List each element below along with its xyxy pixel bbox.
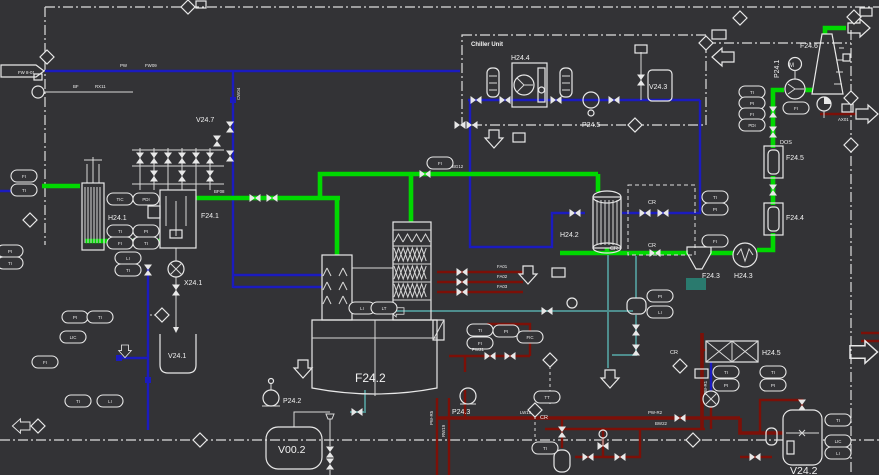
instrument-tag: PI [713, 207, 717, 212]
instruments-layer: FITIPITITICPDITIPIFITILITIPITILICFITILIF… [0, 86, 851, 459]
instrument-tag: LI [360, 306, 364, 311]
pipe-label: FA01 [497, 264, 508, 269]
instrument-tag: PI [504, 329, 508, 334]
instrument-tag: FIC [526, 335, 533, 340]
equipment-label: P24.1 [774, 60, 781, 78]
boundary-diamond-icon [543, 353, 557, 367]
instrument-bubble: FI [11, 170, 37, 182]
instrument-tag: PDI [142, 197, 149, 202]
boundary-diamond-icon [673, 359, 687, 373]
instrument-bubble: LT [371, 302, 397, 314]
instrument-tag: FI [438, 161, 442, 166]
equipment-label: F24.3 [702, 273, 720, 280]
instrument-tag: PI [750, 101, 754, 106]
instrument-tag: PI [724, 383, 728, 388]
valve-icon [769, 107, 777, 118]
valve-icon [326, 459, 334, 470]
instrument-tag: PI [8, 249, 12, 254]
arrow-down-icon [601, 370, 619, 388]
instrument-tag: TIC [116, 197, 123, 202]
valve-icon [178, 153, 186, 164]
valve-icon [213, 136, 221, 147]
boundary-diamond-icon [844, 138, 858, 152]
instrument-tag: FI [750, 112, 754, 117]
instrument-bubble: PDI [133, 193, 159, 205]
arrow-right-icon [856, 105, 878, 123]
instrument-tag: FI [713, 239, 717, 244]
equipment-label: P24.3 [452, 409, 470, 416]
instrument-bubble: TT [534, 391, 560, 403]
instrument-bubble: PI [713, 379, 739, 391]
filter-f24-5: F24.5 [764, 146, 804, 178]
valve-icon [558, 427, 566, 438]
equipment-label: V24.1 [168, 353, 186, 360]
boundary-diamond-icon [844, 91, 858, 105]
equipment-label: H24.3 [734, 273, 753, 280]
valve-icon [206, 153, 214, 164]
valve-icon [136, 153, 144, 164]
valve-icon [457, 288, 468, 296]
instrument-bubble: TIC [107, 193, 133, 205]
valve-icon [267, 194, 278, 202]
instrument-bubble: FI [702, 235, 728, 247]
instrument-bubble: FI [107, 237, 133, 249]
instrument-tag: PI [144, 229, 148, 234]
instrument-tag: LT [382, 306, 387, 311]
instrument-bubble: TI [0, 257, 23, 269]
instrument-bubble: FIC [517, 331, 543, 343]
instrument-tag: LIC [70, 335, 77, 340]
pipe-label: PW-R2 [648, 410, 663, 415]
equipment-label: V24.2 [790, 465, 818, 475]
instrument-tag: LI [126, 256, 130, 261]
instrument-tag: PI [658, 294, 662, 299]
instrument-bubble: TI [739, 86, 765, 98]
instrument-tag: TI [478, 328, 482, 333]
instrument-tag: TT [544, 395, 550, 400]
equipment-label: V24.3 [649, 84, 667, 91]
instrument-bubble: FI [427, 157, 453, 169]
fan-p24-1: M P24.1 [774, 58, 805, 100]
valve-icon [150, 171, 158, 182]
instrument-bubble: PI [133, 225, 159, 237]
arrow-left-icon [712, 48, 734, 66]
valve-icon [467, 121, 478, 129]
instrument-bubble: TI [107, 225, 133, 237]
valve-icon [455, 121, 466, 129]
pipe-label: RX11 [95, 84, 106, 89]
valve-icon [471, 96, 482, 104]
valve-icon [675, 414, 686, 422]
instrument-tag: LI [108, 399, 112, 404]
instrument-tag: LI [658, 310, 662, 315]
instrument-bubble: FI [783, 102, 809, 114]
cr-tag: CR [540, 415, 548, 421]
exchanger-h24-3: H24.3 [733, 243, 757, 280]
valve-icon [609, 96, 620, 104]
instrument-bubble: TI [532, 442, 558, 454]
boundary-diamond-icon [699, 36, 713, 50]
instrument-bubble: LI [97, 395, 123, 407]
boundary-diamond-icon [847, 10, 861, 24]
arrow-down-icon [485, 130, 503, 148]
equipment-label: X24.1 [184, 280, 202, 287]
dos-tag: DOS [780, 140, 792, 146]
valve-icon [650, 249, 661, 257]
instrument-bubble: PDI [739, 119, 765, 131]
instrument-tag: LI [836, 451, 840, 456]
filter-f24-4: F24.4 [764, 203, 804, 235]
instrument-bubble: LI [825, 447, 851, 459]
boundary-diamond-icon [23, 213, 37, 227]
equipment-label: H24.2 [560, 232, 579, 239]
instrument-tag: FI [794, 106, 798, 111]
equipment-label: V24.7 [196, 117, 214, 124]
pipe-label: FW 8-01 [18, 70, 35, 75]
valve-icon [457, 278, 468, 286]
valve-icon [542, 307, 553, 315]
pipe-label: BF [73, 84, 79, 89]
valve-icon [250, 194, 261, 202]
valve-icon [570, 209, 581, 217]
instrument-tag: TI [543, 446, 547, 451]
instrument-bubble: FI [739, 108, 765, 120]
valve-icon [420, 170, 431, 178]
equipment-label: V00.2 [278, 444, 306, 456]
instrument-tag: TI [76, 399, 80, 404]
valve-icon [769, 127, 777, 138]
vessel-v24-3: V24.3 [648, 70, 672, 101]
valve-icon [192, 153, 200, 164]
instrument-bubble: PI [739, 97, 765, 109]
equipment-label: H24.1 [108, 215, 127, 222]
instrument-tag: TI [8, 261, 12, 266]
arrow-down-icon [294, 360, 312, 378]
instrument-bubble: PI [647, 290, 673, 302]
arrow-right-icon [850, 341, 878, 364]
equipment-label: P24.5 [582, 122, 600, 129]
instrument-bubble: LIC [825, 435, 851, 447]
instrument-bubble: PI [493, 325, 519, 337]
instrument-tag: FI [118, 241, 122, 246]
valve-icon [352, 408, 363, 416]
valve-icon [457, 268, 468, 276]
instrument-tag: TI [750, 90, 754, 95]
instrument-bubble: TI [133, 237, 159, 249]
valve-icon [750, 453, 761, 461]
instrument-tag: TI [118, 229, 122, 234]
boundary-diamond-icon [193, 433, 207, 447]
instrument-bubble: LI [647, 306, 673, 318]
valve-icon [164, 153, 172, 164]
cr-tag: CR [610, 246, 618, 252]
valve-icon [144, 265, 152, 276]
valve-icon [798, 400, 806, 411]
instrument-bubble: TI [87, 311, 113, 323]
valve-icon [500, 96, 511, 104]
cr-tag: CR [648, 243, 656, 249]
valve-icon [178, 171, 186, 182]
valve-icon [551, 96, 562, 104]
valve-icon [505, 352, 516, 360]
valve-icon [632, 325, 640, 336]
pipe-label: PW [120, 63, 128, 68]
instrument-tag: FI [22, 174, 26, 179]
exchanger-h24-2: H24.2 CR CR [560, 185, 695, 255]
instrument-tag: PI [771, 383, 775, 388]
motor-label: M [789, 63, 794, 69]
pid-diagram-canvas[interactable]: Chiller Unit [0, 0, 879, 475]
instrument-tag: PDI [748, 123, 755, 128]
pump-p24-2: P24.2 [263, 390, 301, 406]
instrument-tag: LIC [835, 439, 842, 444]
instrument-tag: FI [478, 341, 482, 346]
instrument-tag: PI [73, 315, 77, 320]
pump-p24-5: P24.5 [582, 92, 600, 129]
equipment-label: F24.4 [786, 215, 804, 222]
mixer-x24-1: X24.1 [168, 261, 202, 287]
boundary-diamond-icon [181, 0, 195, 14]
valve-icon [615, 453, 626, 461]
instrument-tag: TI [144, 241, 148, 246]
instrument-bubble: TI [760, 366, 786, 378]
pipe-label: CW04 [236, 87, 241, 100]
equipment-label: P24.2 [283, 398, 301, 405]
equipment-label: H24.4 [511, 55, 530, 62]
pipe-label: LW15 [520, 410, 532, 415]
valve-icon [172, 285, 180, 296]
vessel-v24-2: V24.2 [766, 410, 822, 475]
boundary-diamond-icon [40, 50, 54, 64]
instrument-tag: FI [43, 360, 47, 365]
instrument-tag: TI [724, 370, 728, 375]
pipe-label: PW-R1 [703, 380, 708, 395]
valve-icon [769, 185, 777, 196]
process-flow-drawing: Chiller Unit [0, 0, 879, 475]
instrument-bubble: TI [11, 184, 37, 196]
pipe-label: BW22 [655, 421, 668, 426]
cr-tag: CR [670, 350, 678, 356]
valve-icon [485, 352, 496, 360]
boundary-diamond-icon [155, 308, 169, 322]
equipment-label: F24.6 [800, 43, 818, 50]
vessel-v24-1: V24.1 [160, 334, 196, 373]
chiller-unit-label: Chiller Unit [471, 42, 503, 48]
equipment-label: F24.5 [786, 155, 804, 162]
valve-icon [583, 453, 594, 461]
pipe-label: RW19 [441, 424, 446, 437]
boundary-diamond-icon [31, 419, 45, 433]
tank-v00-2: V00.2 [266, 427, 322, 469]
instrument-bubble: TI [65, 395, 91, 407]
instrument-bubble: TI [115, 264, 141, 276]
pipe-label: FA02 [497, 274, 508, 279]
valve-icon [206, 171, 214, 182]
instrument-tag: TI [836, 418, 840, 423]
instrument-tag: TI [22, 188, 26, 193]
valve-icon [637, 75, 645, 86]
instrument-bubble: PI [62, 311, 88, 323]
equipment-label: F24.1 [201, 213, 219, 220]
instrument-tag: TI [126, 268, 130, 273]
instrument-tag: TI [713, 195, 717, 200]
valve-icon [640, 209, 651, 217]
instrument-tag: TI [771, 370, 775, 375]
pipe-label: BG12 [452, 164, 464, 169]
equipment-label: F24.2 [355, 371, 386, 385]
arrow-left-icon [12, 419, 30, 433]
pipe-label: BF08 [214, 189, 225, 194]
instrument-bubble: PI [702, 203, 728, 215]
equipment: H24.1 F24.1 V24.7 X24.1 V24.1 [82, 34, 850, 475]
boundary-diamond-icon [686, 433, 700, 447]
pipe-label: FW09 [145, 63, 157, 68]
valve-icon [632, 345, 640, 356]
valve-icon [150, 153, 158, 164]
instrument-bubble: TI [702, 191, 728, 203]
instrument-bubble: FI [32, 356, 58, 368]
pipe-label: AX01 [838, 117, 849, 122]
equipment-label: H24.5 [762, 350, 781, 357]
instrument-bubble: PI [0, 245, 23, 257]
pipe-label: PW-R5 [429, 410, 434, 425]
instrument-bubble: LIC [60, 331, 86, 343]
instrument-bubble: LI [115, 252, 141, 264]
cr-tag: CR [648, 200, 656, 206]
stack-f24-6: F24.6 [800, 34, 850, 94]
pipe-label: FA03 [497, 284, 508, 289]
pipe-label: PW21 [472, 347, 485, 352]
boundary-diamond-icon [733, 11, 747, 25]
instrument-tag: TI [98, 315, 102, 320]
valve-icon [326, 447, 334, 458]
boundary-diamond-icon [628, 118, 642, 132]
instrument-bubble: TI [825, 414, 851, 426]
instrument-bubble: PI [760, 379, 786, 391]
valve-icon [658, 209, 669, 217]
instrument-bubble: TI [713, 366, 739, 378]
instrument-bubble: TI [467, 324, 493, 336]
